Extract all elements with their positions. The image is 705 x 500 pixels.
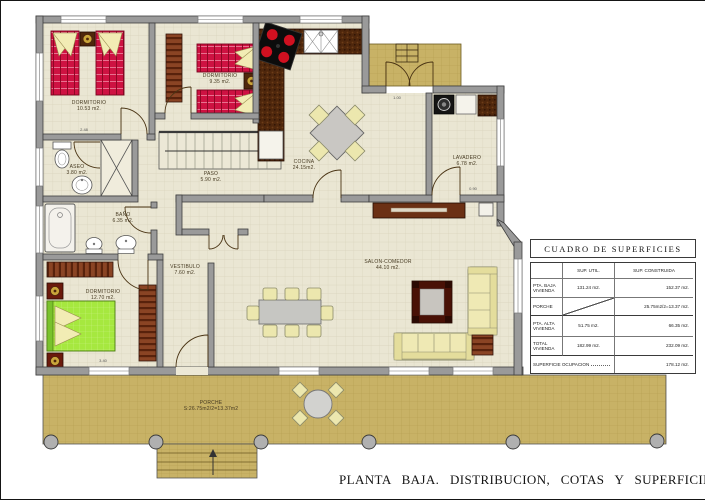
window-icon (36, 148, 43, 186)
table-cell: 131.24 m2. (563, 279, 615, 298)
chair-icon (307, 325, 321, 337)
cabinet-icon (479, 203, 493, 216)
chair-icon (263, 288, 277, 300)
washbasin-icon (72, 176, 92, 194)
table-cell: 51.75 m2. (563, 316, 615, 337)
side-table-icon (472, 335, 493, 355)
table-row-label: SUPERFICIE OCUPACION (531, 356, 615, 373)
floor-plan-canvas: DORMITORIO10.53 m2. DORMITORIO9.35 m2. C… (0, 0, 705, 500)
table-header-sup-construida: SUP. CONSTRUIDA (615, 263, 693, 279)
window-icon (279, 367, 319, 375)
wardrobe-icon (166, 34, 182, 102)
table-row-label: PTA. ALTA VIVIENDA (531, 316, 563, 337)
chair-icon (247, 306, 259, 320)
chair-icon (285, 325, 299, 337)
washbasin-icon (116, 236, 136, 251)
wardrobe-icon (139, 285, 156, 361)
window-icon (36, 296, 43, 341)
window-icon (198, 16, 243, 23)
surface-table-grid: SUP. UTIL. SUP. CONSTRUIDA PTA. BAJA VIV… (530, 262, 696, 374)
table-row-label: PORCHE (531, 298, 563, 316)
table-cell-diagonal (563, 298, 615, 316)
window-icon (300, 16, 342, 23)
window-icon (389, 367, 429, 375)
table-row-label: PTA. BAJA VIVIENDA (531, 279, 563, 298)
surface-table: CUADRO DE SUPERFICIES SUP. UTIL. SUP. CO… (530, 239, 696, 374)
table-header-sup-util: SUP. UTIL. (563, 263, 615, 279)
window-icon (497, 119, 504, 166)
rear-deck (369, 44, 461, 86)
surface-table-title: CUADRO DE SUPERFICIES (530, 239, 696, 258)
window-icon (36, 53, 43, 101)
occupation-label: SUPERFICIE OCUPACION (533, 362, 589, 367)
dotted-leader (591, 362, 610, 366)
entrance-opening (176, 367, 208, 375)
laundry-counter (456, 95, 476, 114)
table-cell: 182.99 m2. (563, 337, 615, 356)
sofa-icon (394, 333, 474, 360)
window-icon (453, 367, 493, 375)
toilet-icon (53, 142, 71, 149)
sofa-icon (468, 267, 497, 335)
table-cell: 152.37 m2. (615, 279, 693, 298)
table-cell: 66.35 m2. (615, 316, 693, 337)
table-cell: 232.09 m2. (615, 337, 693, 356)
window-icon (89, 367, 129, 375)
dining-table-icon (259, 300, 321, 324)
chair-icon (307, 288, 321, 300)
laundry-furniture (434, 95, 502, 116)
chair-icon (321, 306, 333, 320)
wardrobe-icon (47, 262, 113, 277)
porch-steps (157, 444, 257, 478)
table-cell: 25.75m2/2=13.37 m2. (615, 298, 693, 316)
table-row-label: TOTAL VIVIENDA (531, 337, 563, 356)
bathtub-icon (45, 204, 75, 252)
fridge-icon (259, 131, 283, 159)
table-cell: 178.12 m2. (615, 356, 693, 373)
table-header-empty (531, 263, 563, 279)
chair-icon (263, 325, 277, 337)
drawing-title: PLANTA BAJA. DISTRIBUCION, COTAS Y SUPER… (339, 472, 703, 488)
round-table (304, 390, 332, 418)
porch-floor (43, 375, 666, 478)
window-icon (61, 16, 106, 23)
window-icon (36, 206, 43, 253)
chair-icon (285, 288, 299, 300)
window-icon (514, 259, 522, 313)
